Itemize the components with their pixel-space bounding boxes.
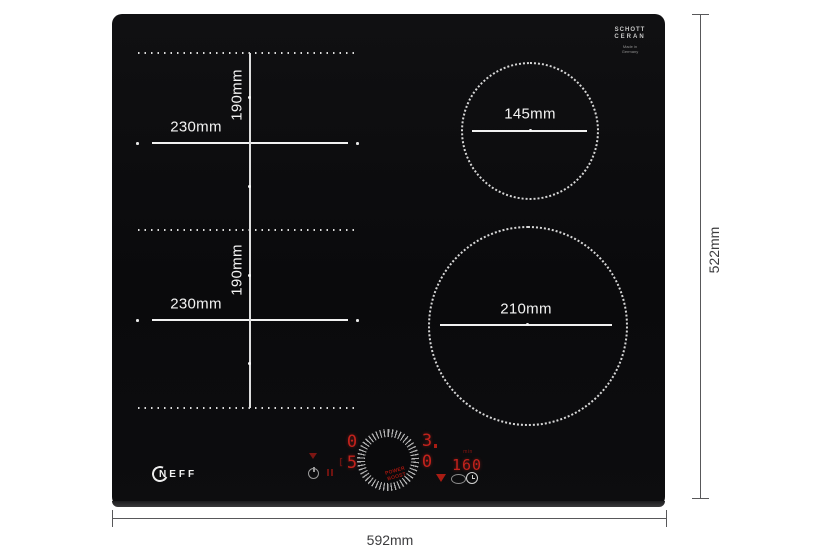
width-dim-cap-left: [112, 510, 113, 527]
left-zone-level-display: 0: [347, 432, 357, 452]
clock-timer-icon[interactable]: [466, 472, 478, 484]
schott-line2: CERAN: [607, 34, 653, 41]
neff-logo: NEFF: [152, 466, 197, 482]
left-zone-level-display-2: 5: [347, 453, 357, 473]
end-dot: [356, 142, 359, 145]
right-zone-level-display-2: 0: [422, 452, 432, 472]
overall-height-label: 522mm: [706, 227, 722, 274]
mid-dot: [248, 362, 251, 365]
end-dot: [356, 319, 359, 322]
mid-dot: [248, 274, 251, 277]
right-zone-level-display: 3: [422, 431, 432, 451]
height-dim-cap-top: [692, 14, 709, 15]
mid-dot: [248, 185, 251, 188]
flex-bottom-height-label: 190mm: [229, 244, 246, 296]
neff-logo-arc: [150, 464, 171, 485]
key-lock-icon[interactable]: [451, 474, 466, 484]
flex-zone-bottom-edge-dotted: [138, 407, 358, 409]
large-zone-diameter-label: 210mm: [500, 301, 552, 318]
schott-ceran-logo: SCHOTT CERAN Made in Germany: [607, 27, 653, 54]
mid-dot: [248, 96, 251, 99]
flex-top-width-label: 230mm: [170, 119, 222, 136]
flex-top-height-label: 190mm: [229, 69, 246, 121]
width-dimension-line: [112, 518, 667, 519]
hob-bottom-bevel: [112, 501, 665, 507]
end-dot: [136, 142, 139, 145]
timer-select-arrow-icon[interactable]: [436, 474, 446, 482]
overall-width-label: 592mm: [367, 532, 414, 548]
timer-unit-label: min: [463, 449, 473, 455]
power-down-arrow-icon[interactable]: [309, 453, 317, 459]
flex-height-line: [249, 53, 251, 408]
flex-zone-middle-edge-dotted: [138, 229, 358, 231]
height-dimension-line: [700, 14, 701, 499]
schott-line1: SCHOTT: [607, 27, 653, 34]
mid-dot: [526, 323, 529, 326]
flex-zone-top-edge-dotted: [138, 52, 358, 54]
left-zone-bracket-indicator: [: [338, 458, 343, 468]
width-dim-cap-right: [666, 510, 667, 527]
mid-dot: [529, 129, 532, 132]
flex-bottom-width-label: 230mm: [170, 296, 222, 313]
large-cooking-zone-ring: [428, 226, 628, 426]
boost-indicator-dot: [434, 444, 437, 448]
end-dot: [136, 319, 139, 322]
timer-display: 160: [452, 456, 482, 474]
product-dimension-image: 230mm 190mm 230mm 190mm 145mm 210mm SCHO…: [0, 0, 833, 555]
small-zone-diameter-label: 145mm: [504, 106, 556, 123]
power-icon[interactable]: [308, 468, 319, 479]
schott-sub2: Germany: [607, 49, 653, 54]
pause-icon[interactable]: [327, 469, 333, 476]
height-dim-cap-bottom: [692, 498, 709, 499]
